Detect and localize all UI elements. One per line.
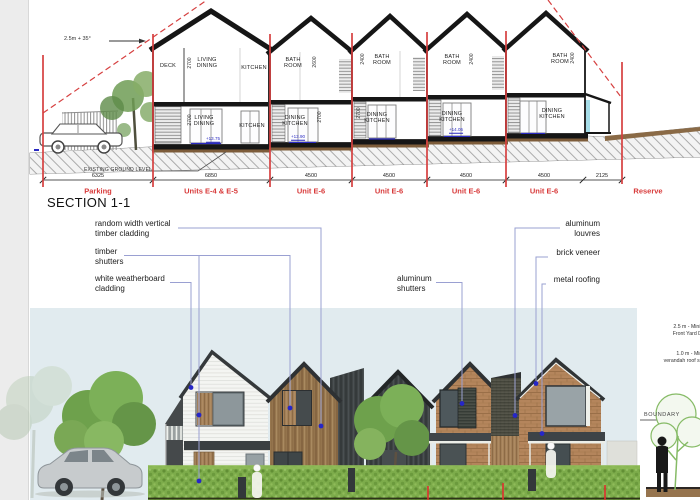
room-label: KITCHEN bbox=[241, 65, 267, 71]
room-label: BATH ROOM bbox=[551, 53, 569, 65]
hedge bbox=[148, 465, 640, 500]
dimension-value: 6850 bbox=[205, 173, 217, 179]
room-label: KITCHEN bbox=[239, 123, 265, 129]
dimension-value: 2125 bbox=[596, 173, 608, 179]
lot-label: Unit E-6 bbox=[297, 187, 325, 196]
section-unit-e4-e5 bbox=[150, 11, 272, 153]
vertical-dimension: 2700 bbox=[187, 114, 193, 125]
dimension-value: 6325 bbox=[92, 173, 104, 179]
porch-lean-to bbox=[585, 94, 611, 133]
dimension-value: 4500 bbox=[383, 173, 395, 179]
lot-label: Unit E-6 bbox=[375, 187, 403, 196]
section-unit-e6-2 bbox=[349, 16, 430, 148]
annotation-aluminum-louvres: aluminum louvres bbox=[490, 219, 600, 238]
annotation-white-weatherboard-cladding: white weatherboard cladding bbox=[95, 274, 165, 293]
section-unit-e6-1 bbox=[267, 18, 355, 151]
upper-window-shutter bbox=[282, 390, 312, 426]
section-drawing bbox=[30, 0, 700, 187]
boundary-label: BOUNDARY bbox=[644, 412, 680, 418]
vertical-dimension: 2400 bbox=[360, 53, 366, 64]
setback-note-verandah: 1.0 m - Minimum verandah roof setback bbox=[630, 351, 700, 364]
room-label: LIVING DINING bbox=[194, 115, 214, 127]
room-label: DINING KITCHEN bbox=[439, 111, 465, 123]
section-unit-e6-3 bbox=[424, 14, 509, 145]
lot-label: Unit E-6 bbox=[530, 187, 558, 196]
elevation-render bbox=[0, 308, 700, 500]
annotation-metal-roofing: metal roofing bbox=[490, 275, 600, 285]
room-label: LIVING DINING bbox=[197, 57, 217, 69]
dimension-value: 4500 bbox=[305, 173, 317, 179]
slope-arrow bbox=[109, 39, 146, 44]
lot-label: Unit E-6 bbox=[452, 187, 480, 196]
section-unit-e6-4 bbox=[503, 13, 611, 142]
vertical-dimension: 2600 bbox=[312, 56, 318, 67]
room-label: BATH ROOM bbox=[284, 57, 302, 69]
room-label: DINING KITCHEN bbox=[364, 112, 390, 124]
large-grey-window bbox=[546, 386, 590, 426]
level-marker: +13.90 bbox=[291, 134, 305, 141]
dimension-value: 4500 bbox=[460, 173, 472, 179]
architectural-drawing-sheet: SECTION 1-1 2.5m + 35° EXISTING GROUND L… bbox=[0, 0, 700, 500]
lot-label: Parking bbox=[84, 187, 112, 196]
vertical-dimension: 2700 bbox=[187, 57, 193, 68]
aluminum-shutter-panel bbox=[458, 388, 476, 428]
right-margin bbox=[640, 394, 700, 497]
annotation-aluminum-shutters: aluminum shutters bbox=[397, 274, 432, 293]
vertical-dimension: 2700 bbox=[317, 111, 323, 122]
room-label: DINING KITCHEN bbox=[539, 108, 565, 120]
dimension-value: 4500 bbox=[538, 173, 550, 179]
recession-plane-note: 2.5m + 35° bbox=[64, 36, 91, 42]
lot-label: Reserve bbox=[633, 187, 662, 196]
level-marker: +14.05 bbox=[449, 127, 463, 134]
vertical-dimension: 2700 bbox=[356, 107, 362, 118]
section-title: SECTION 1-1 bbox=[47, 195, 130, 210]
lot-label: Units E-4 & E-5 bbox=[184, 187, 238, 196]
room-label: BATH ROOM bbox=[373, 54, 391, 66]
annotation-random-width-vertical-timber-cladding: random width vertical timber cladding bbox=[95, 219, 171, 238]
upper-window-timber-shutter bbox=[196, 392, 244, 426]
room-label: BATH ROOM bbox=[443, 54, 461, 66]
annotation-timber-shutters: timber shutters bbox=[95, 247, 123, 266]
setback-note-front-yard: 2.5 m - Minimum Front Yard Depth bbox=[640, 324, 700, 337]
room-label: DECK bbox=[160, 63, 176, 69]
vertical-dimension: 2400 bbox=[570, 52, 576, 63]
vertical-dimension: 2400 bbox=[469, 53, 475, 64]
annotation-brick-veneer: brick veneer bbox=[490, 248, 600, 258]
room-label: DINING KITCHEN bbox=[282, 115, 308, 127]
level-marker: +13.75 bbox=[206, 136, 220, 143]
